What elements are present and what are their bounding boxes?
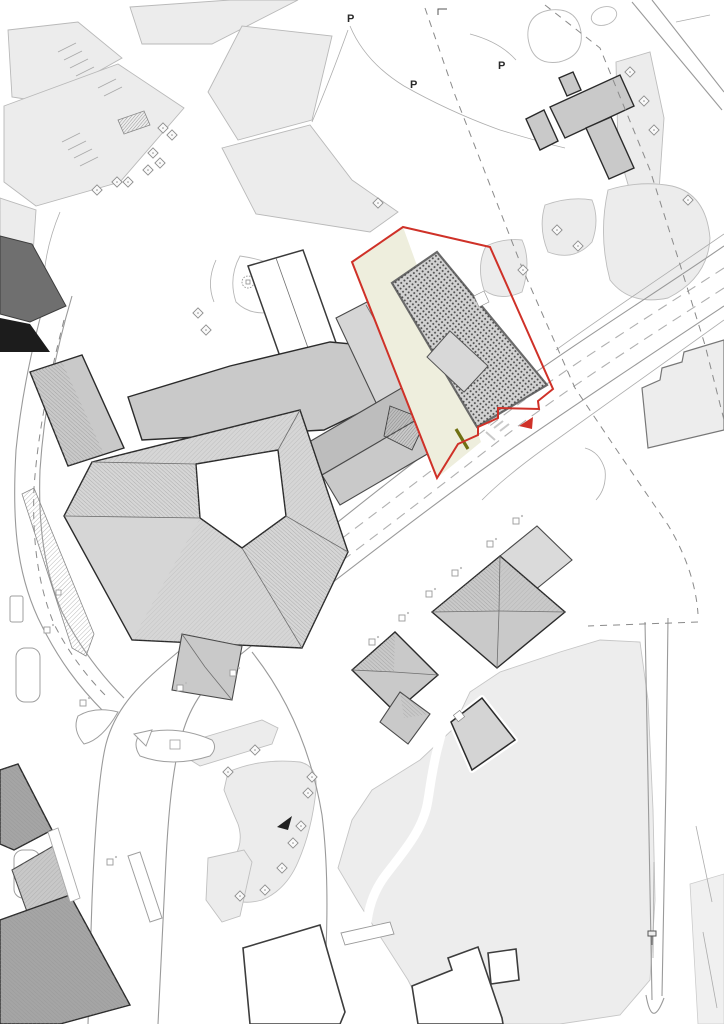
curb-corner <box>585 448 605 500</box>
narrow-road-edge <box>662 618 668 996</box>
ground-patch <box>690 874 724 1024</box>
narrow-road-end <box>646 995 664 1013</box>
stepped-building <box>642 340 724 448</box>
tree-icon <box>148 148 158 158</box>
green-blob <box>542 199 596 256</box>
road-marker-icon <box>369 636 379 645</box>
tree-icon <box>143 165 153 175</box>
scalloped-tree-icon <box>246 280 250 284</box>
site-plan-drawing: PPP <box>0 0 724 1024</box>
junction-marker-icon <box>80 697 90 706</box>
tree-icon <box>155 158 165 168</box>
road-marker-icon <box>426 588 436 597</box>
forecourt-fan-edge <box>210 260 216 302</box>
dark-building <box>0 236 66 322</box>
tree-icon <box>201 325 211 335</box>
garden-strip <box>206 850 252 922</box>
park-block <box>222 125 398 232</box>
platform-detail <box>56 590 61 595</box>
junction-marker-icon <box>107 856 117 865</box>
traffic-island <box>16 648 40 702</box>
path-edge <box>470 34 516 60</box>
site-entry-arrow-icon <box>519 417 533 429</box>
road-marker-icon <box>513 515 523 524</box>
tree-icon <box>123 177 133 187</box>
parking-flag-icon: P <box>498 60 505 72</box>
tree-icon <box>167 130 177 140</box>
road-marker-icon <box>452 567 462 576</box>
tree-icon <box>193 308 203 318</box>
parking-strip <box>128 852 162 922</box>
green-blob <box>603 184 710 300</box>
shelter <box>10 596 23 622</box>
site-plan-canvas: PPP <box>0 0 724 1024</box>
parking-flag-icon: P <box>347 13 354 25</box>
south-road-east-edge <box>158 655 240 1024</box>
road-marker-icon <box>487 538 497 547</box>
road-marker-icon <box>399 612 409 621</box>
landscape-outline <box>589 3 619 28</box>
bracket-mark <box>438 9 447 15</box>
landscape-outline <box>528 10 581 63</box>
park-block <box>208 26 332 140</box>
corner-road-edge <box>676 15 710 22</box>
black-building <box>0 318 50 352</box>
junction-marker-icon <box>44 624 54 633</box>
roof-slope <box>64 462 200 518</box>
corner-road-edge <box>652 0 724 92</box>
parking-flag-icon: P <box>410 79 417 91</box>
parking-flag-symbols: PPP <box>347 13 505 91</box>
